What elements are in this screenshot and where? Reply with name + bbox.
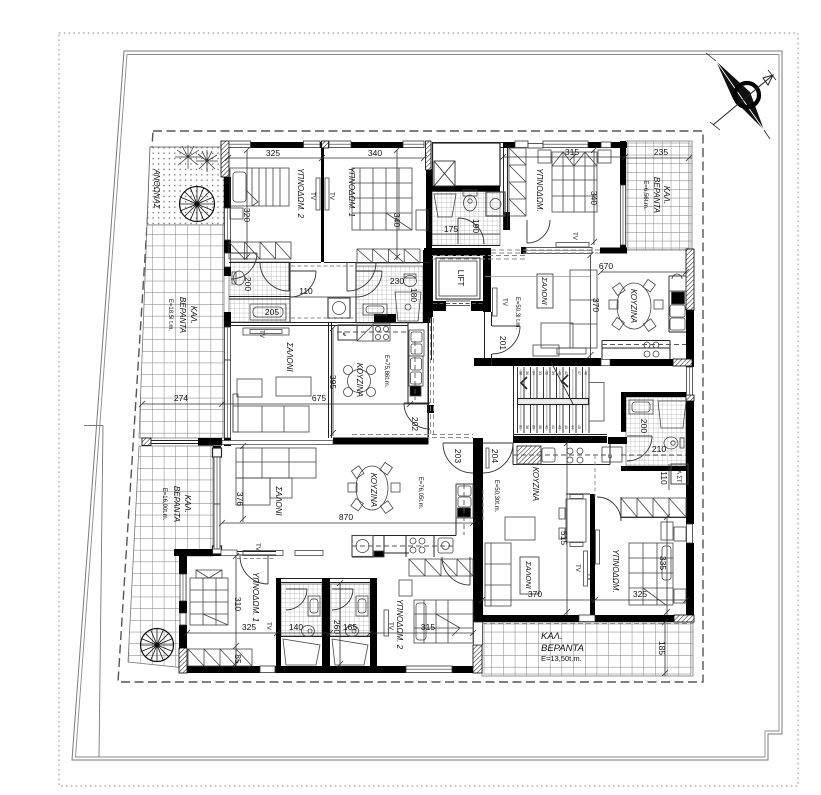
- svg-text:45: 45: [577, 425, 581, 429]
- svg-text:ΚΟΥΖΙΝΑ: ΚΟΥΖΙΝΑ: [531, 467, 540, 501]
- svg-text:200: 200: [639, 419, 649, 433]
- svg-text:TV: TV: [501, 298, 507, 306]
- svg-text:370: 370: [591, 298, 601, 312]
- svg-text:TV: TV: [265, 622, 271, 630]
- svg-text:ΣΑΛΟΝΙ: ΣΑΛΟΝΙ: [540, 276, 549, 304]
- svg-text:E=50,3l t.m.: E=50,3l t.m.: [514, 297, 520, 330]
- svg-text:E=76,05t.m.: E=76,05t.m.: [417, 477, 423, 510]
- svg-text:ΚΑΛ.: ΚΑΛ.: [189, 306, 198, 324]
- svg-text:140: 140: [289, 622, 303, 632]
- svg-text:205: 205: [265, 307, 279, 317]
- svg-text:TV: TV: [574, 564, 580, 572]
- svg-text:190: 190: [471, 219, 481, 233]
- svg-text:85: 85: [233, 654, 243, 664]
- svg-text:ΒΕΡΑΝΤΑ: ΒΕΡΑΝΤΑ: [178, 297, 187, 333]
- svg-text:395: 395: [328, 375, 338, 389]
- svg-text:33: 33: [538, 371, 542, 375]
- svg-text:ΒΕΡΑΝΤΑ: ΒΕΡΑΝΤΑ: [652, 177, 661, 213]
- svg-text:325: 325: [242, 622, 256, 632]
- svg-text:675: 675: [312, 393, 326, 403]
- svg-text:ΚΑΛ.: ΚΑΛ.: [541, 631, 563, 642]
- svg-text:175: 175: [444, 224, 458, 234]
- svg-text:325: 325: [633, 589, 647, 599]
- svg-text:40: 40: [558, 371, 562, 375]
- svg-text:274: 274: [174, 393, 188, 403]
- svg-text:230: 230: [390, 276, 404, 286]
- svg-text:315: 315: [565, 147, 579, 157]
- svg-text:ΣΑΛΟΝI: ΣΑΛΟΝI: [285, 341, 294, 372]
- svg-text:39: 39: [532, 425, 536, 429]
- svg-text:340: 340: [368, 148, 382, 158]
- svg-text:ΑΝΘΩΝΑΣ: ΑΝΘΩΝΑΣ: [152, 168, 161, 210]
- svg-text:E=50,30t.m.: E=50,30t.m.: [493, 480, 499, 513]
- svg-text:110: 110: [659, 471, 669, 485]
- svg-text:TV: TV: [571, 232, 577, 240]
- svg-text:ΒΕΡΑΝΤΑ: ΒΕΡΑΝΤΑ: [541, 643, 584, 654]
- svg-text:870: 870: [339, 512, 353, 522]
- svg-text:204: 204: [490, 449, 500, 463]
- svg-text:ΣΤ: ΣΤ: [675, 475, 681, 483]
- svg-text:46: 46: [584, 371, 588, 375]
- svg-text:TV: TV: [258, 330, 264, 338]
- svg-text:41: 41: [551, 425, 555, 429]
- svg-text:35: 35: [545, 371, 549, 375]
- svg-text:E=16,00t.m.: E=16,00t.m.: [161, 488, 167, 521]
- svg-text:202: 202: [410, 417, 420, 431]
- svg-text:43: 43: [558, 425, 562, 429]
- svg-text:31: 31: [519, 425, 523, 429]
- svg-text:200: 200: [243, 277, 253, 291]
- svg-text:42: 42: [564, 371, 568, 375]
- svg-text:ΒΕΡΑΝΤΑ: ΒΕΡΑΝΤΑ: [172, 486, 181, 522]
- svg-text:ΠΛ: ΠΛ: [675, 466, 681, 474]
- svg-text:235: 235: [654, 147, 668, 157]
- svg-text:36: 36: [525, 425, 529, 429]
- svg-text:39: 39: [551, 371, 555, 375]
- svg-text:670: 670: [599, 261, 613, 271]
- svg-text:315: 315: [421, 622, 435, 632]
- svg-text:203: 203: [453, 449, 463, 463]
- svg-text:ΥΠΝΟΔΩΜ.: ΥΠΝΟΔΩΜ.: [611, 549, 620, 592]
- svg-text:110: 110: [299, 286, 313, 296]
- svg-text:340: 340: [589, 191, 599, 205]
- svg-text:34: 34: [532, 371, 536, 375]
- svg-text:40: 40: [564, 425, 568, 429]
- svg-text:201: 201: [498, 336, 508, 350]
- svg-text:ΥΠΝΟΔΩΜ. 2: ΥΠΝΟΔΩΜ. 2: [296, 168, 305, 219]
- svg-text:185: 185: [657, 641, 667, 655]
- svg-text:ΣΑΛΟΝΙ: ΣΑΛΟΝΙ: [524, 560, 533, 588]
- svg-text:ΥΠΝΟΔΩΜ.: ΥΠΝΟΔΩΜ.: [535, 168, 544, 211]
- svg-text:47: 47: [577, 371, 581, 375]
- svg-text:LIFT: LIFT: [456, 270, 465, 287]
- svg-text:165: 165: [343, 622, 357, 632]
- svg-text:E=6,56t.m.: E=6,56t.m.: [642, 180, 648, 210]
- svg-text:325: 325: [266, 148, 280, 158]
- svg-text:320: 320: [242, 208, 252, 222]
- svg-text:515: 515: [559, 531, 569, 545]
- svg-text:44: 44: [571, 425, 575, 429]
- svg-text:340: 340: [392, 213, 402, 227]
- svg-text:370: 370: [528, 589, 542, 599]
- svg-text:180: 180: [409, 288, 419, 302]
- svg-text:ΚΟΥΖΙΝΑ: ΚΟΥΖΙΝΑ: [629, 289, 638, 323]
- svg-text:41: 41: [545, 425, 549, 429]
- svg-text:210: 210: [652, 444, 666, 454]
- svg-text:ΣΑΛΟΝI: ΣΑΛΟΝI: [274, 485, 283, 516]
- svg-text:TV: TV: [309, 192, 315, 200]
- svg-text:38: 38: [538, 425, 542, 429]
- svg-text:E=13,50t.m.: E=13,50t.m.: [541, 654, 582, 663]
- svg-text:260: 260: [332, 620, 342, 634]
- svg-text:ψ: ψ: [608, 454, 612, 460]
- svg-text:ΚΑΛ.: ΚΑΛ.: [662, 186, 671, 204]
- svg-text:TV: TV: [586, 573, 592, 581]
- svg-text:TV: TV: [254, 543, 260, 551]
- svg-text:ΥΠΝΟΔΩΜ. 1: ΥΠΝΟΔΩΜ. 1: [347, 167, 356, 217]
- svg-text:376: 376: [235, 492, 245, 506]
- svg-text:335: 335: [658, 556, 668, 570]
- svg-text:310: 310: [233, 597, 243, 611]
- svg-text:38: 38: [519, 371, 523, 375]
- svg-text:E=18,5l t.m.: E=18,5l t.m.: [167, 299, 173, 332]
- svg-text:E=75,86t.m.: E=75,86t.m.: [383, 355, 389, 388]
- svg-text:ΥΠΝΟΔΩΜ. 2: ΥΠΝΟΔΩΜ. 2: [395, 599, 404, 650]
- svg-text:ΥΠΝΟΔΩΜ. 1: ΥΠΝΟΔΩΜ. 1: [251, 572, 260, 622]
- svg-text:ΚΟΥΖΙΝΑ: ΚΟΥΖΙΝΑ: [355, 363, 364, 397]
- svg-text:ΚΟΥΖΙΝΑ: ΚΟΥΖΙΝΑ: [369, 473, 378, 507]
- svg-text:36: 36: [525, 371, 529, 375]
- svg-text:ΚΑΛ.: ΚΑΛ.: [183, 495, 192, 513]
- svg-text:TV: TV: [387, 622, 393, 630]
